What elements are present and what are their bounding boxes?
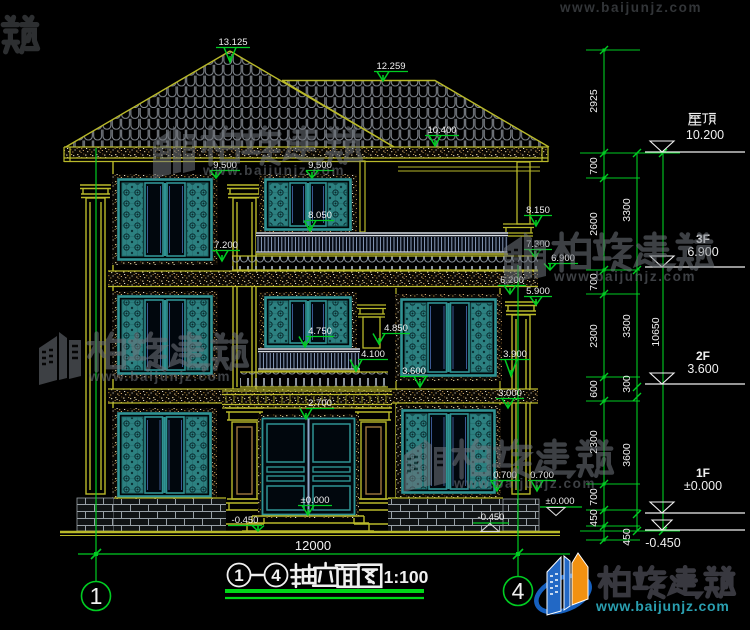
svg-text:2.700: 2.700 [308, 398, 332, 409]
svg-text:1F: 1F [696, 466, 710, 480]
svg-text:10.400: 10.400 [427, 125, 456, 136]
svg-text:2600: 2600 [588, 212, 600, 236]
svg-text:-0.450: -0.450 [478, 512, 505, 523]
svg-text:www.baijunjz.com: www.baijunjz.com [202, 163, 345, 178]
svg-text:4.100: 4.100 [361, 349, 385, 360]
svg-text:4.850: 4.850 [384, 323, 408, 334]
svg-text:2925: 2925 [588, 89, 600, 113]
svg-text:10650: 10650 [650, 317, 662, 346]
svg-text:www.baijunjz.com: www.baijunjz.com [453, 476, 596, 491]
svg-text:1:100: 1:100 [384, 567, 429, 587]
svg-text:±0.000: ±0.000 [684, 479, 722, 493]
svg-text:300: 300 [621, 375, 633, 393]
svg-text:5.900: 5.900 [526, 286, 550, 297]
svg-text:±0.000: ±0.000 [301, 495, 330, 506]
svg-text:8.050: 8.050 [308, 210, 332, 221]
svg-text:12.259: 12.259 [376, 61, 405, 72]
svg-text:13.125: 13.125 [218, 37, 247, 48]
svg-text:12000: 12000 [295, 538, 331, 553]
svg-text:3.600: 3.600 [402, 366, 426, 377]
svg-text:2300: 2300 [588, 324, 600, 348]
svg-text:www.baijunjz.com: www.baijunjz.com [559, 0, 702, 15]
svg-text:7.200: 7.200 [214, 240, 238, 251]
svg-text:-0.450: -0.450 [645, 536, 680, 550]
svg-text:2F: 2F [696, 349, 710, 363]
svg-text:4: 4 [512, 578, 525, 604]
svg-text:1: 1 [90, 583, 103, 609]
svg-text:4: 4 [271, 566, 281, 585]
svg-text:www.baijunjz.com: www.baijunjz.com [88, 369, 231, 384]
svg-text:1: 1 [234, 566, 243, 585]
svg-text:3.000: 3.000 [498, 388, 522, 399]
svg-text:4.750: 4.750 [308, 326, 332, 337]
svg-text:3.600: 3.600 [687, 362, 718, 376]
svg-text:www.baijunjz.com: www.baijunjz.com [595, 598, 730, 614]
svg-text:8.150: 8.150 [526, 205, 550, 216]
svg-text:600: 600 [588, 380, 600, 398]
svg-text:3.900: 3.900 [503, 349, 527, 360]
svg-text:3300: 3300 [621, 314, 633, 338]
svg-text:700: 700 [588, 157, 600, 175]
svg-text:450: 450 [588, 509, 600, 527]
svg-text:10.200: 10.200 [686, 128, 724, 142]
svg-text:450: 450 [621, 528, 633, 546]
svg-text:±0.000: ±0.000 [546, 496, 575, 507]
svg-text:-0.450: -0.450 [232, 515, 259, 526]
svg-text:www.baijunjz.com: www.baijunjz.com [553, 269, 696, 284]
svg-text:3600: 3600 [621, 443, 633, 467]
svg-text:3300: 3300 [621, 198, 633, 222]
